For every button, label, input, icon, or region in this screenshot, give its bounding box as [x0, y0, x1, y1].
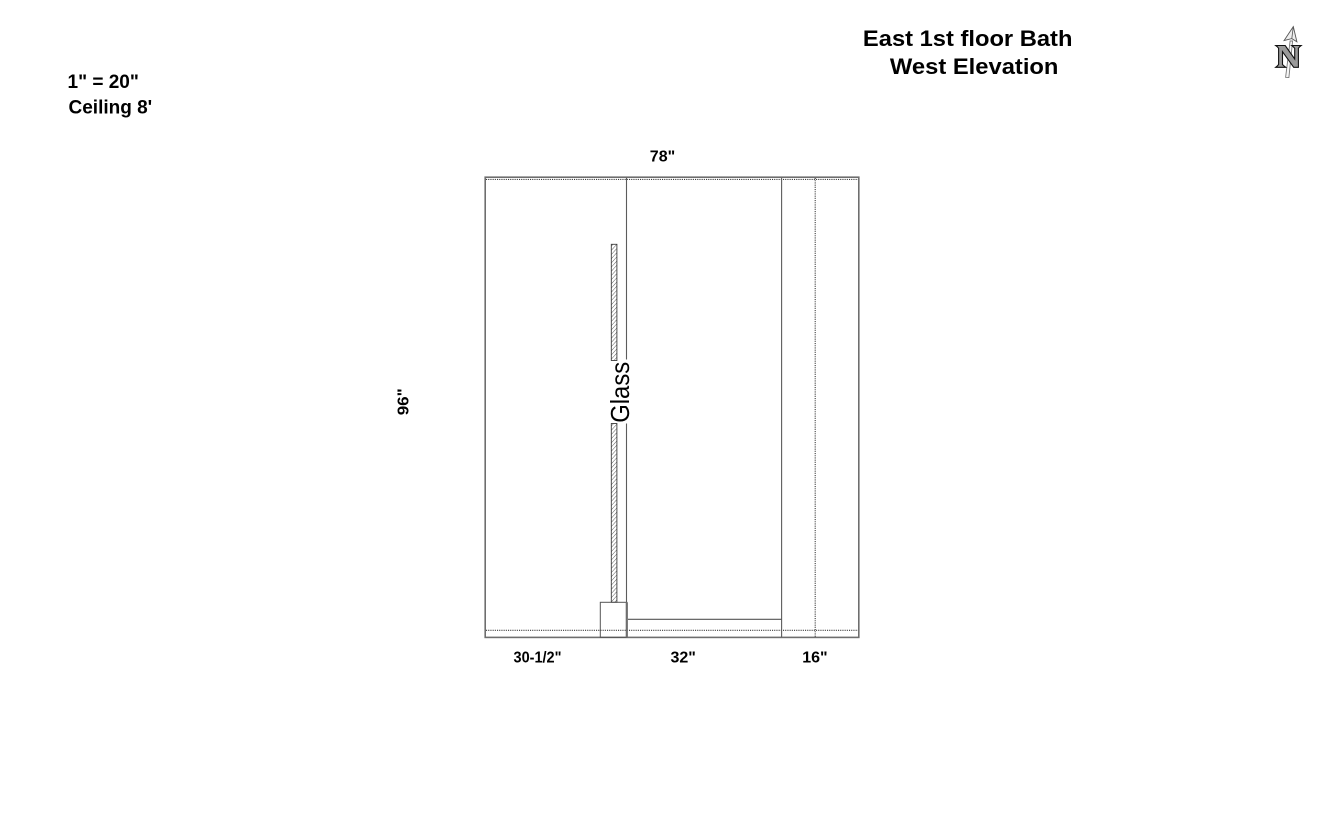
svg-text:96": 96" [395, 388, 412, 415]
svg-text:West Elevation: West Elevation [890, 54, 1059, 79]
svg-text:30-1/2": 30-1/2" [514, 649, 562, 666]
svg-text:East 1st floor Bath: East 1st floor Bath [863, 26, 1073, 51]
svg-text:Ceiling 8': Ceiling 8' [69, 98, 153, 119]
svg-text:Glass: Glass [605, 362, 635, 423]
svg-text:16": 16" [802, 649, 827, 666]
svg-text:1" = 20": 1" = 20" [68, 72, 139, 93]
svg-text:78": 78" [650, 149, 675, 166]
svg-text:32": 32" [671, 649, 696, 666]
